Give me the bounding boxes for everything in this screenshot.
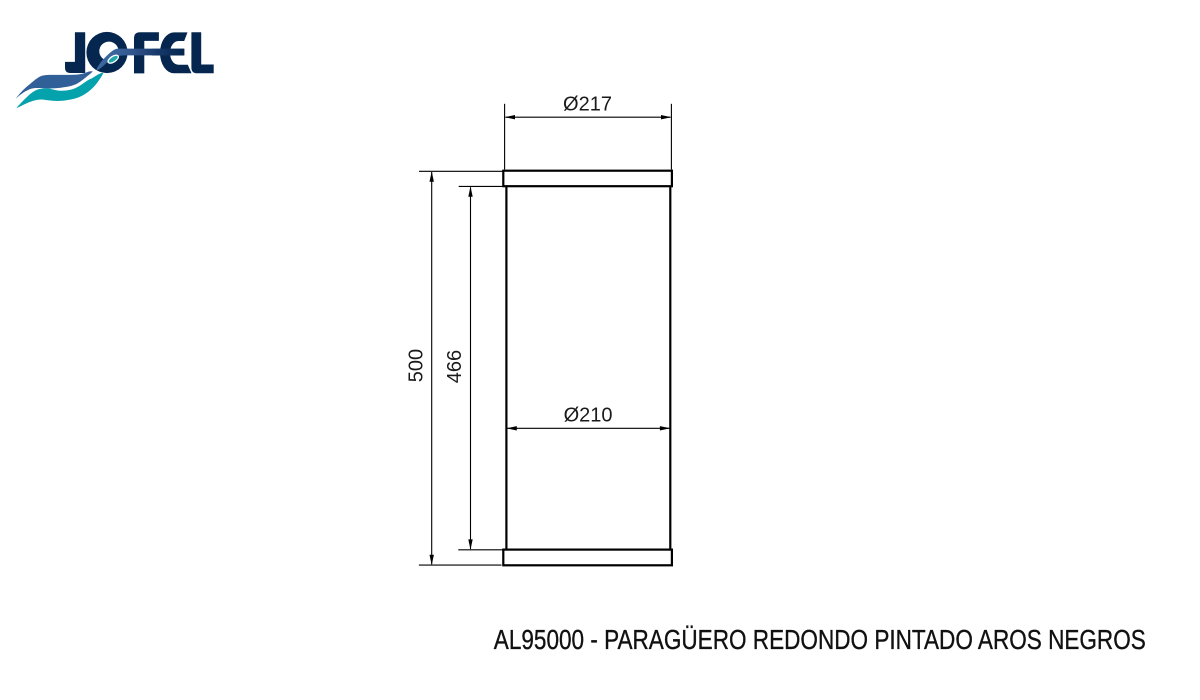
svg-text:Ø217: Ø217 [563,94,612,116]
svg-text:466: 466 [444,350,466,383]
svg-text:500: 500 [406,349,428,382]
svg-text:AL95000 - PARAGÜERO REDONDO PI: AL95000 - PARAGÜERO REDONDO PINTADO AROS… [494,624,1146,655]
svg-text:Ø210: Ø210 [564,404,613,426]
